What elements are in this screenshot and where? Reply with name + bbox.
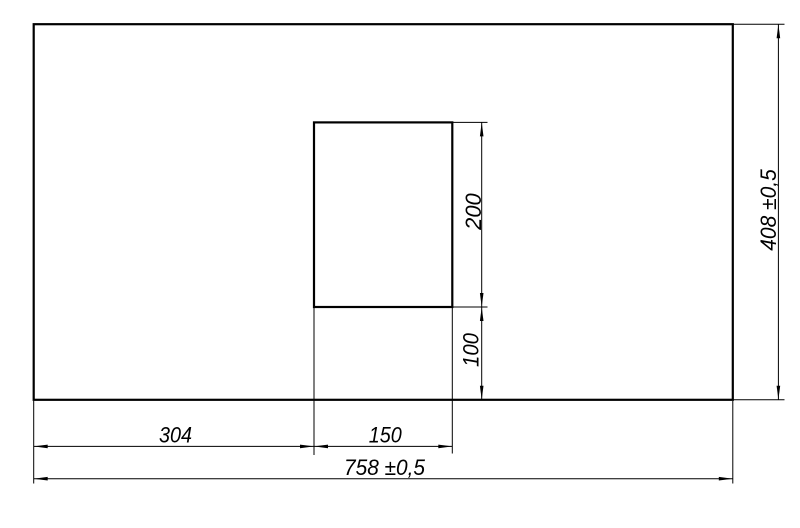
svg-text:304: 304 [159,423,192,448]
svg-text:100: 100 [459,333,484,367]
svg-text:200: 200 [461,193,486,231]
svg-text:150: 150 [369,423,402,448]
svg-text:758 ±0,5: 758 ±0,5 [344,455,426,480]
svg-text:408 ±0,5: 408 ±0,5 [756,168,781,250]
